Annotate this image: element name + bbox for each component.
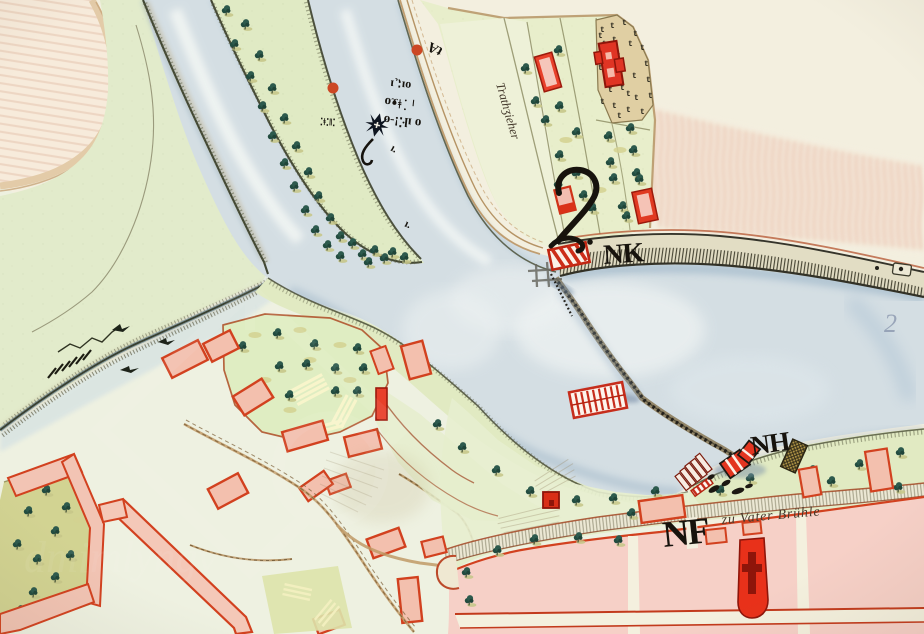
svg-text:dmimlyngv: dmimlyngv: [24, 533, 218, 582]
